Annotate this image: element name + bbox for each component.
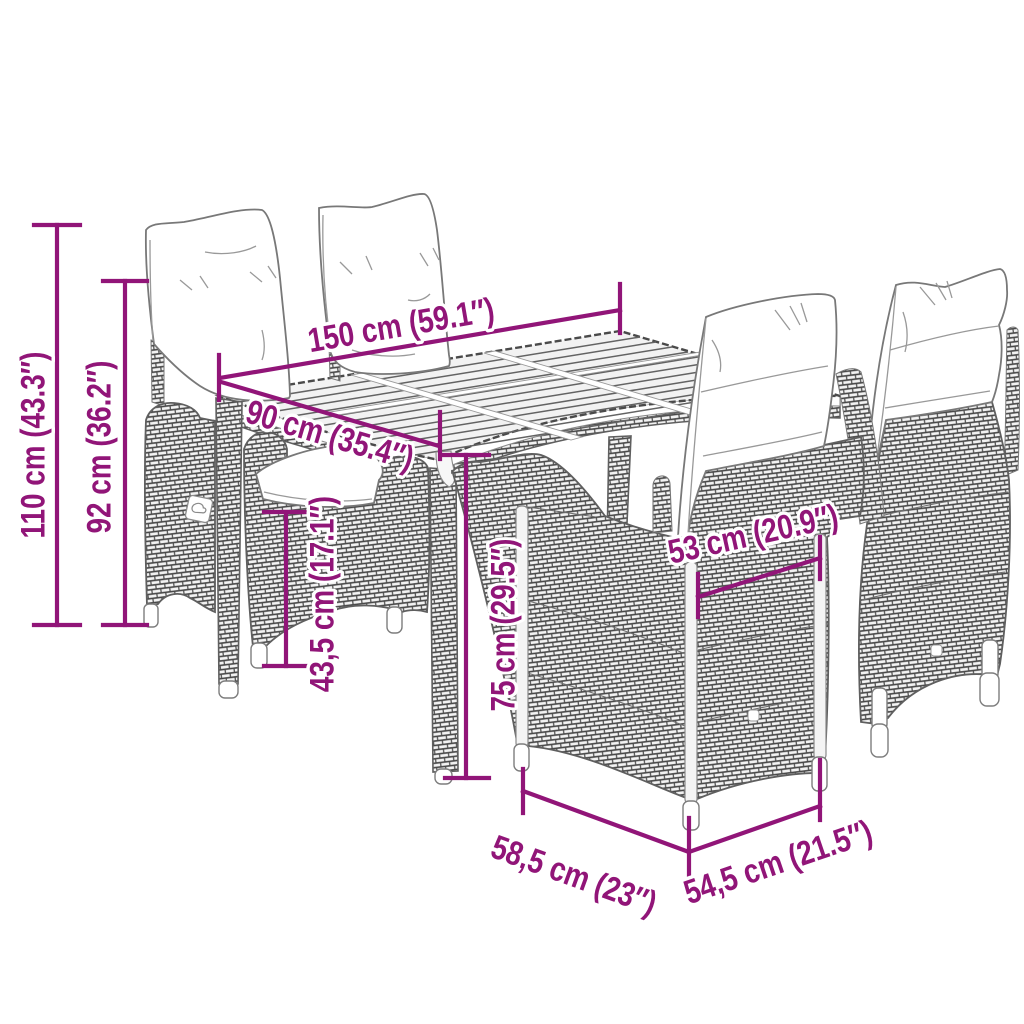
svg-text:43,5 cm (17.1″): 43,5 cm (17.1″): [303, 496, 341, 692]
svg-text:75 cm (29.5″): 75 cm (29.5″): [484, 539, 522, 712]
svg-text:110 cm (43.3″): 110 cm (43.3″): [14, 352, 52, 539]
svg-text:92 cm (36.2″): 92 cm (36.2″): [80, 361, 118, 534]
